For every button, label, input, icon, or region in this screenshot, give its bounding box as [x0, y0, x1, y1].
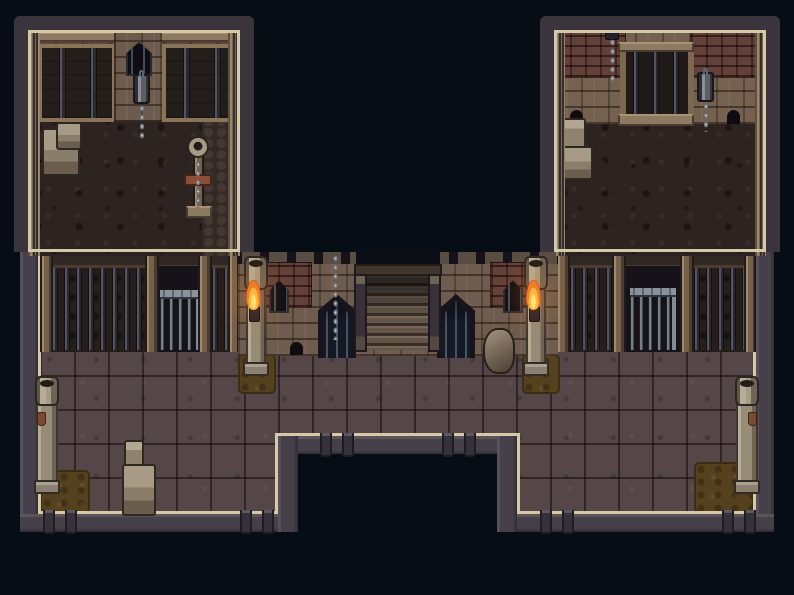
wall-tab [744, 510, 756, 534]
notch-band-left [278, 436, 298, 532]
left-hall-pillar-base [34, 480, 60, 494]
left-hall-pillar-cap [35, 376, 59, 406]
wood-post [612, 252, 626, 352]
right-run-bars-a [570, 268, 614, 350]
stair-rail-left [354, 274, 367, 352]
wall-tab [464, 433, 476, 457]
stair-rail-right [428, 274, 441, 352]
wall-tab [342, 433, 354, 457]
top-right-room-frame [540, 16, 780, 252]
wall-tab [65, 510, 77, 534]
notch-band-top [278, 436, 517, 454]
wood-post [228, 252, 238, 352]
right-hall-pillar-cap [735, 376, 759, 406]
wall-tab [562, 510, 574, 534]
notch-void [298, 454, 497, 532]
gate-chain[interactable] [330, 254, 341, 340]
wall-tab [320, 433, 332, 457]
wood-post [680, 252, 694, 352]
wood-post [40, 252, 53, 352]
iron-gate-right[interactable] [630, 288, 676, 350]
right-hall-pillar-bracket[interactable] [748, 412, 757, 426]
right-torch-pillar-base [523, 362, 549, 376]
boulder[interactable] [483, 328, 515, 374]
wall-tab [442, 433, 454, 457]
left-torch-flame[interactable] [246, 280, 261, 310]
mouse-hole [290, 342, 303, 355]
game-viewport [0, 0, 794, 595]
wall-tab [722, 510, 734, 534]
left-hall-pillar-bracket[interactable] [37, 412, 46, 426]
notch-band-right [497, 436, 517, 532]
left-torch-pillar-base [243, 362, 269, 376]
stairs-up[interactable] [358, 276, 438, 350]
iron-gate-left[interactable] [160, 290, 200, 350]
left-run-bars-a [52, 268, 146, 350]
bottom-wall-band-right [517, 514, 774, 532]
right-run-bars-b [694, 268, 744, 350]
wall-tab [43, 510, 55, 534]
wall-tab [240, 510, 252, 534]
wood-post [145, 252, 159, 352]
right-torch-flame[interactable] [526, 280, 541, 310]
top-left-room-frame [14, 16, 254, 252]
right-hall-pillar-base [734, 480, 760, 494]
wall-tab [262, 510, 274, 534]
wood-post [556, 252, 570, 352]
wood-post [744, 252, 756, 352]
notch-trim-right [517, 433, 520, 514]
wall-tab [540, 510, 552, 534]
hall-chair-seat[interactable] [122, 464, 156, 516]
wood-post [198, 252, 212, 352]
